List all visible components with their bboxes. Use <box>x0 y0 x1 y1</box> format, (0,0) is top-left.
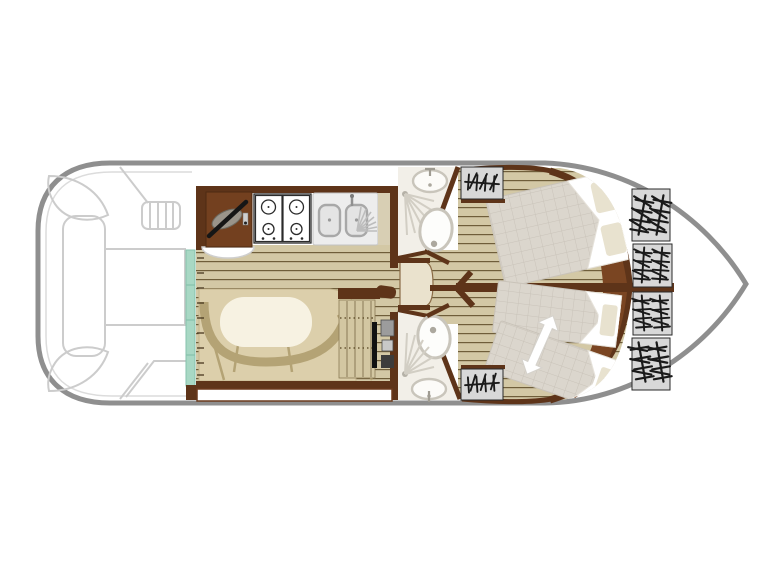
steps <box>339 300 375 378</box>
side-deck-strip <box>196 381 396 401</box>
boat-plan-canvas <box>0 0 768 576</box>
double-sink <box>313 193 378 245</box>
wardrobe <box>398 258 433 310</box>
bulkhead-wall <box>390 186 398 268</box>
instrument-panel <box>372 320 394 368</box>
gas-hob <box>254 194 311 243</box>
boat-plan-svg <box>0 0 768 576</box>
worktop-end <box>378 193 390 245</box>
pillow <box>598 302 620 338</box>
dining-table <box>220 297 312 347</box>
galley-side-wall <box>196 186 206 250</box>
